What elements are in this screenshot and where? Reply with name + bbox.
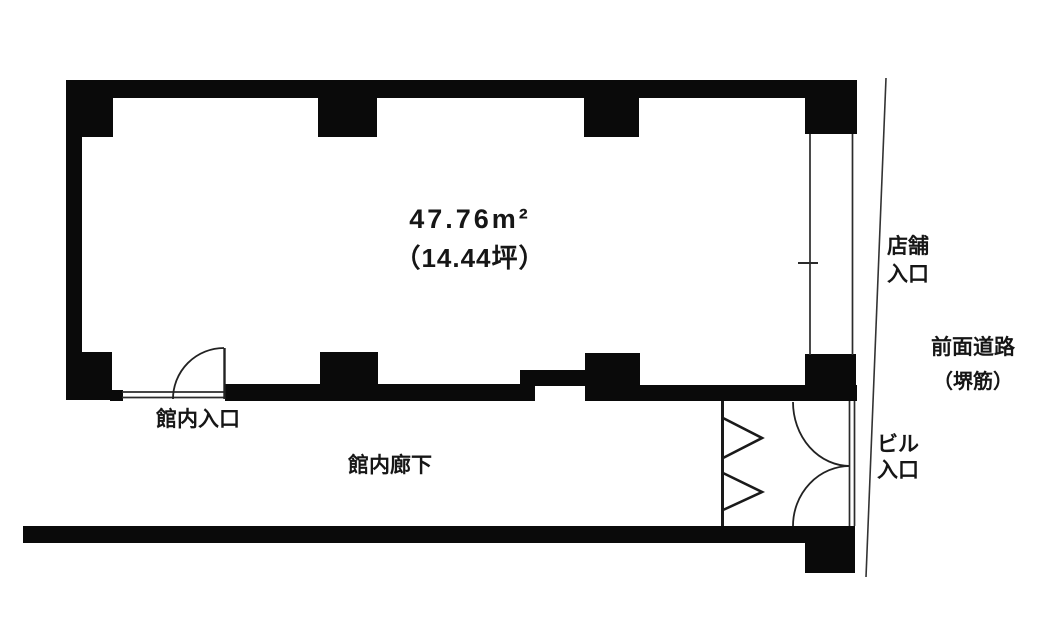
hall-entrance-label: 館内入口 (156, 407, 240, 433)
area-tsubo-label: （14.44坪） (320, 238, 620, 275)
store-entrance-label: 店舗 入口 (887, 233, 929, 289)
chevron-mark-upper (723, 418, 762, 458)
chevron-mark-lower (723, 473, 762, 510)
building-door-swing-arc-top (793, 402, 850, 466)
road-name-label: （堺筋） (928, 370, 1018, 395)
road-boundary-line (866, 78, 886, 577)
hall-corridor-label: 館内廊下 (348, 453, 432, 479)
linework-layer (0, 0, 1045, 624)
front-road-label: 前面道路 (931, 335, 1015, 361)
area-size-label: 47.76m² (320, 204, 620, 235)
building-entrance-label: ビル 入口 (877, 432, 919, 484)
building-door-swing-arc-bottom (793, 466, 850, 526)
floor-plan: 47.76m² （14.44坪） 館内入口 館内廊下 店舗 入口 前面道路 （堺… (0, 0, 1045, 624)
